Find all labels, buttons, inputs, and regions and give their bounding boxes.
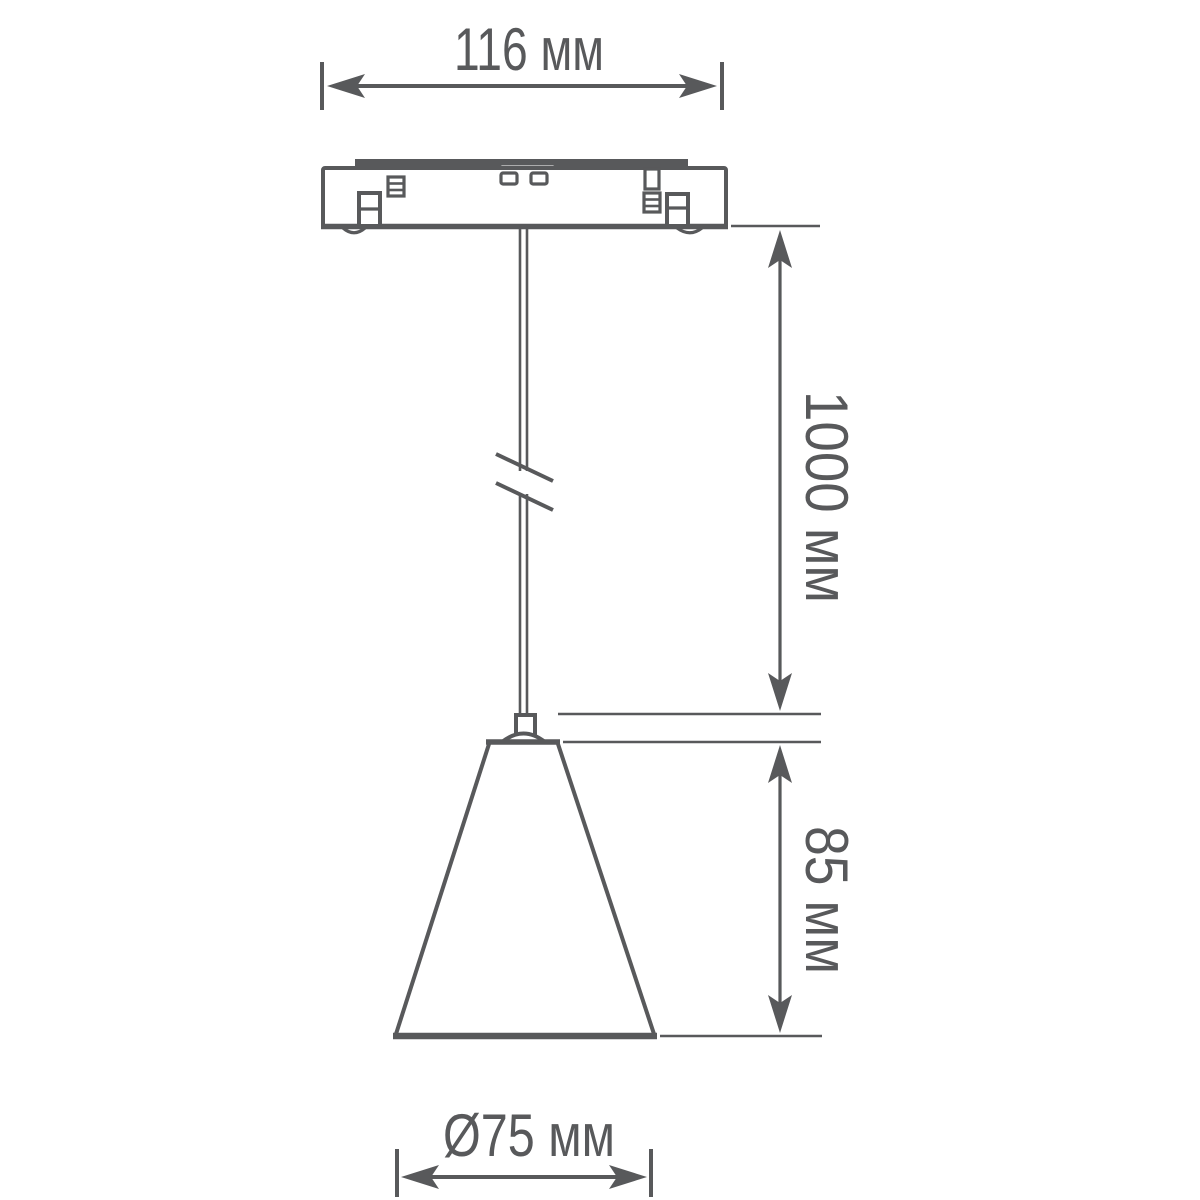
break-slash-top: [496, 454, 553, 481]
dimension-shade-height: 85 мм: [768, 745, 860, 1033]
suspension-wire: [496, 229, 553, 716]
base-width-label: 116 мм: [454, 16, 604, 83]
extension-lines: [558, 226, 822, 1036]
pendant-dimension-drawing: 116 мм: [0, 0, 1200, 1200]
latch-clip-right: [667, 194, 688, 226]
wire-break-icon: [496, 454, 553, 510]
drawing-canvas: 116 мм: [0, 0, 1200, 1200]
right-slot: [645, 169, 659, 189]
shade-right-side: [558, 744, 654, 1034]
lamp-shade: [393, 742, 657, 1036]
shade-diameter-label: Ø75 мм: [443, 1102, 615, 1169]
dimension-shade-diameter: Ø75 мм: [397, 1102, 651, 1197]
break-slash-bottom: [496, 483, 553, 510]
cord-length-label: 1000 мм: [793, 391, 860, 603]
track-adapter: [321, 159, 728, 233]
dimension-cord-length: 1000 мм: [768, 230, 860, 711]
shade-left-side: [396, 744, 489, 1034]
dimension-base-width: 116 мм: [322, 16, 722, 110]
cord-grip: [502, 715, 545, 742]
shade-height-label: 85 мм: [793, 826, 860, 974]
